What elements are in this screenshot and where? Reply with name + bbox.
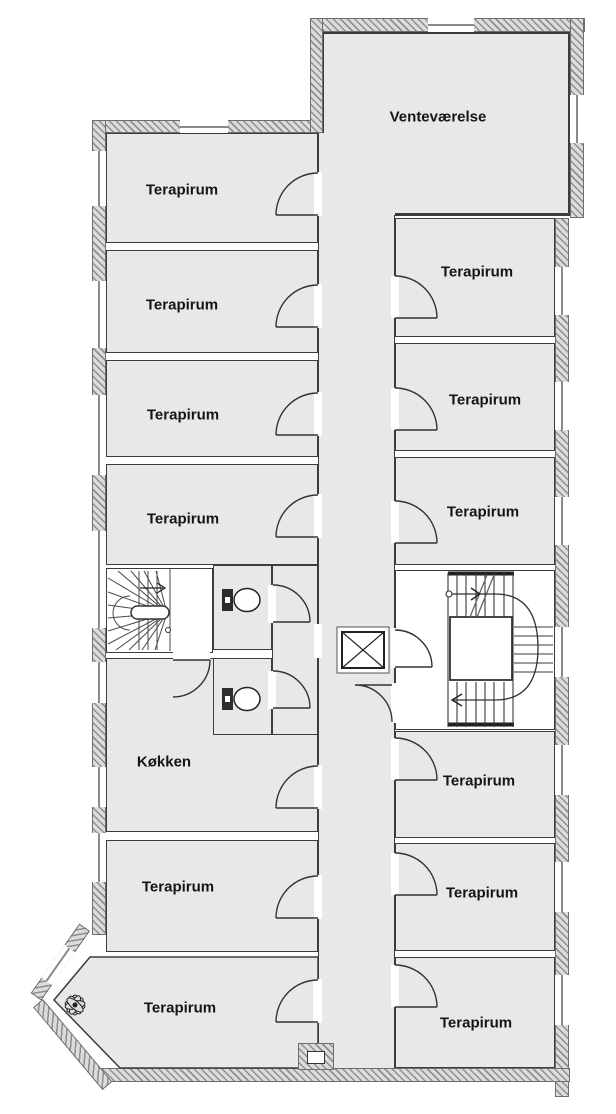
room-label: Terapirum — [446, 885, 518, 902]
corridor — [318, 215, 395, 1068]
door-opening — [314, 284, 322, 328]
room-label: Terapirum — [147, 511, 219, 528]
wc-room-1 — [213, 565, 272, 650]
door-opening — [314, 172, 322, 216]
door-opening — [173, 649, 210, 660]
window — [555, 627, 569, 677]
window — [92, 151, 106, 206]
room-label: Terapirum — [441, 264, 513, 281]
door-opening — [391, 501, 399, 543]
window — [555, 862, 569, 912]
exterior-wall-left — [92, 120, 106, 935]
room-label: Terapirum — [144, 1000, 216, 1017]
chimney-flue — [307, 1051, 325, 1064]
window — [570, 95, 584, 143]
corridor-upper — [318, 133, 395, 217]
room-label: Terapirum — [440, 1015, 512, 1032]
window — [180, 120, 228, 133]
door-opening — [391, 683, 399, 723]
room-terapirum-right-6 — [395, 957, 555, 1068]
window — [92, 767, 106, 807]
room-label: Terapirum — [142, 879, 214, 896]
room-label: Terapirum — [147, 407, 219, 424]
left-stair-room — [106, 568, 213, 653]
door-opening — [314, 494, 322, 538]
wall-line — [390, 213, 570, 216]
window — [92, 662, 106, 703]
door-opening — [268, 585, 276, 623]
door-opening — [268, 671, 276, 709]
room-label: Terapirum — [447, 504, 519, 521]
right-stair-hall — [395, 570, 555, 730]
door-opening — [391, 388, 399, 430]
window — [555, 975, 569, 1025]
door-opening — [391, 276, 399, 318]
door-opening — [391, 628, 399, 668]
exterior-wall-diagonal-lower — [33, 999, 112, 1090]
door-opening — [314, 624, 322, 658]
wc-lobby — [272, 565, 318, 735]
window — [92, 395, 106, 475]
room-label: Terapirum — [443, 773, 515, 790]
window — [555, 382, 569, 430]
exterior-wall-bottom — [100, 1068, 570, 1082]
chimney — [298, 1043, 334, 1070]
window — [92, 833, 106, 882]
room-label: Venteværelse — [390, 109, 487, 126]
exterior-wall-diagonal-upper — [31, 924, 90, 1001]
exterior-wall-waiting-left — [310, 18, 323, 133]
wc-room-2 — [213, 658, 272, 735]
door-opening — [391, 853, 399, 895]
window — [92, 531, 106, 628]
door-opening — [314, 392, 322, 436]
door-opening — [314, 765, 322, 809]
room-label: Køkken — [137, 754, 191, 771]
window — [428, 18, 474, 32]
window — [555, 267, 569, 315]
room-label: Terapirum — [146, 182, 218, 199]
plant-icon — [64, 994, 85, 1016]
window — [41, 945, 75, 985]
room-terapirum-left-5 — [106, 840, 318, 952]
door-opening — [391, 738, 399, 780]
window — [92, 281, 106, 348]
door-opening — [314, 875, 322, 919]
window — [555, 745, 569, 795]
wall-line — [322, 32, 570, 34]
window — [555, 497, 569, 545]
room-label: Terapirum — [449, 392, 521, 409]
floor-plan: Venteværelse Terapirum Terapirum Terapir… — [0, 0, 616, 1114]
room-label: Terapirum — [146, 297, 218, 314]
door-opening — [314, 979, 322, 1023]
door-opening — [391, 965, 399, 1007]
